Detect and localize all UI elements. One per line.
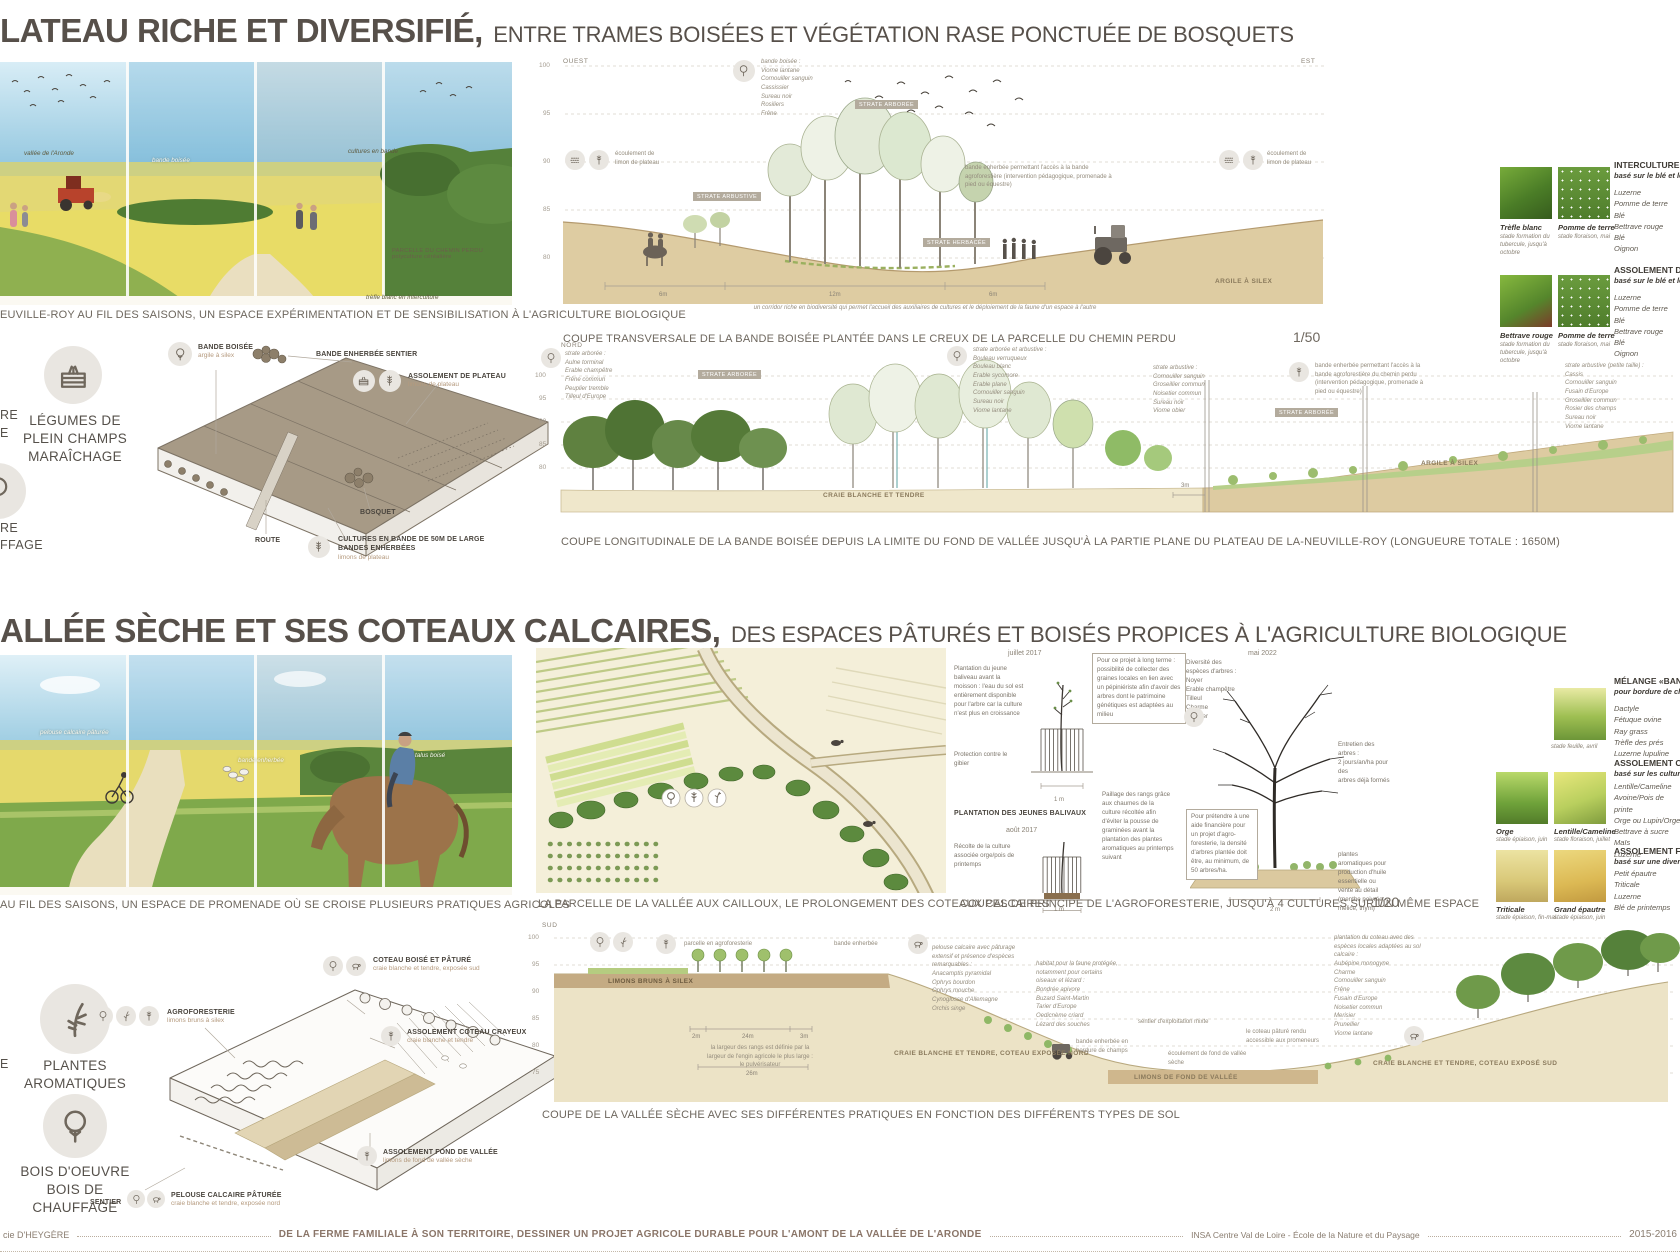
panorama-vallee: pelouse calcaire pâturée bande enherbée … [0, 655, 512, 895]
direction-east: EST [1301, 58, 1315, 65]
footer-project-title: DE LA FERME FAMILIALE À SON TERRITOIRE, … [279, 1229, 982, 1240]
soil-label-argile: ARGILE À SILEX [1215, 278, 1272, 285]
measure-26m: 26m [746, 1071, 758, 1077]
axis-tick: 100 [539, 62, 550, 69]
axo-label-bande-boisee: BANDE BOISÉEargile à silex [198, 343, 253, 361]
annotation-sentier: sentier d'exploitation mixte [1138, 1018, 1218, 1027]
photo-pomme-de-terre [1558, 275, 1610, 327]
axis-tick: 90 [543, 158, 550, 165]
measure-6m: 6m [989, 292, 997, 298]
annotation-parcelle-agroforesterie: parcelle en agroforesterie [684, 940, 774, 949]
coupe-transversale: OUEST EST 100 95 90 85 80 bande boisée :… [535, 52, 1345, 352]
tree-icon [590, 932, 610, 952]
annotation-parcelle-chemin-perdu: PARCELLE DU CHEMIN PERDU polyculture cér… [392, 248, 502, 260]
note-graines-locales: Pour ce projet à long terme : possibilit… [1092, 653, 1186, 724]
wheat-icon [589, 150, 609, 170]
section2-title-comma: , [712, 612, 721, 650]
wheat-icon [379, 370, 401, 392]
tag-strate-arboree: STRATE ARBORÉE [1275, 408, 1338, 417]
annotation-cultures-en-bande: cultures en bande [348, 148, 398, 155]
measure-3m: 3m [1181, 483, 1189, 489]
photo-stage: stade épiaison, juin [1554, 914, 1605, 922]
wheat-icon [656, 934, 676, 954]
annotation-trefle-blanc: trèfle blanc en interculture [366, 294, 438, 301]
photo-triticale [1496, 850, 1548, 902]
wheat-icon [381, 1026, 401, 1046]
note-aide-financiere: Pour prétendre à une aide financière pou… [1186, 809, 1258, 880]
panorama-plateau-illustration [0, 62, 512, 305]
axo-label-pelouse-calcaire: PELOUSE CALCAIRE PÂTURÉEcraie blanche et… [171, 1191, 282, 1209]
wheat-icon [139, 1006, 159, 1026]
section2-title: ALLÉE SÈCHE ET SES COTEAUX CALCAIRES [0, 612, 712, 650]
axonometric-vallee-block: AGROFORESTERIElimons bruns à silex COTEA… [85, 928, 590, 1223]
tree-icon [1184, 707, 1204, 727]
tree-icon [733, 60, 755, 82]
axis-tick: 80 [539, 464, 546, 471]
axo-label-coteau-boise: COTEAU BOISÉ ET PÂTURÉcraie blanche et t… [373, 956, 480, 974]
axis-tick: 75 [532, 1069, 539, 1076]
legend-cut-fragment: FFAGE [0, 538, 43, 552]
soil-limons-fond: LIMONS DE FOND DE VALLÉE [1134, 1074, 1238, 1081]
species-list-4: strate arbustive (petite taille) : Cassi… [1565, 362, 1645, 432]
coupes-agroforesterie-scale: 1/20 [1372, 894, 1399, 910]
sediment-icon [565, 150, 585, 170]
axis-tick: 85 [532, 1015, 539, 1022]
section1-title: LATEAU RICHE ET DIVERSIFIÉ [0, 12, 474, 50]
coupes-agroforesterie: juillet 2017 Plantation du jeune balivea… [952, 645, 1394, 917]
axis-tick: 90 [539, 418, 546, 425]
axonometric-plateau-block: BANDE BOISÉEargile à silex BANDE ENHERBÉ… [138, 328, 583, 573]
photo-stage: stade formation du tubercule, jusqu'à oc… [1500, 341, 1550, 365]
tag-strate-arboree: STRATE ARBORÉE [698, 370, 761, 379]
vegetable-crate-icon [44, 346, 102, 404]
photo-grand-epautre [1554, 850, 1606, 902]
tag-strate-arbustive: STRATE ARBUSTIVE [693, 192, 761, 201]
coupe-longitudinale-caption: COUPE LONGITUDINALE DE LA BANDE BOISÉE D… [561, 536, 1560, 548]
legend-assolement-head: ASSOLEMENT DE Pbasé sur le blé et les [1614, 265, 1680, 285]
note-corridor: un corridor riche en biodiversité qui pe… [715, 304, 1135, 313]
measure-12m: 12m [829, 292, 841, 298]
note-protection: Protection contre le gibier [954, 751, 1016, 769]
annotation-plantation-coteau: plantation du coteau avec des espèces lo… [1334, 934, 1430, 1038]
annotation-coteau-pature: le coteau pâturé rendu accessible aux pr… [1246, 1028, 1326, 1045]
legend-melange-head: MÉLANGE «BANDEpour bordure de cha [1614, 676, 1680, 696]
footer-dotted-leader [990, 1236, 1184, 1237]
aromatic-plant-icon [116, 1006, 136, 1026]
legend-assolement-coteau-head: ASSOLEMENT COTEbasé sur les cultures [1614, 758, 1680, 778]
date-mai-2022: mai 2022 [1248, 650, 1277, 657]
photo-name: Pomme de terre [1558, 331, 1615, 340]
soil-craie-nord: CRAIE BLANCHE ET TENDRE, COTEAU EXPOSÉE … [894, 1050, 1089, 1057]
measure-1m: 1 m [1054, 797, 1064, 803]
axo-label-cultures-en-bande: CULTURES EN BANDE DE 50M DE LARGE BANDES… [338, 535, 484, 563]
axo-label-bosquet: BOSQUET [360, 508, 396, 517]
annotation-bande-enherbee: bande enherbée [238, 757, 284, 764]
axo-label-assolement-fond: ASSOLEMENT FOND DE VALLÉElimons de fond … [383, 1148, 498, 1166]
photo-orge [1496, 772, 1548, 824]
axis-tick: 80 [532, 1042, 539, 1049]
legend-cut-fragment: RE [0, 521, 18, 535]
axo-label-bande-enherbee: BANDE ENHERBÉE SENTIER [316, 350, 417, 359]
footer-dotted-leader [1428, 1236, 1622, 1237]
photo-stage: stade épiaison, juin [1496, 836, 1547, 844]
axo-label-route: ROUTE [255, 536, 280, 545]
legend-cultures-plateau: INTERCULTUREbasé sur le blé et les Luzer… [1494, 145, 1680, 370]
wheat-icon [308, 536, 330, 558]
measure-3m: 3m [800, 1034, 808, 1040]
soil-limons-bruns: LIMONS BRUNS À SILEX [608, 978, 693, 985]
cow-icon [147, 1190, 165, 1208]
axis-tick: 95 [532, 961, 539, 968]
photo-lentille-cameline [1554, 772, 1606, 824]
panorama-vallee-caption: AU FIL DES SAISONS, UN ESPACE DE PROMENA… [0, 899, 570, 911]
annotation-vallee-aronde: vallée de l'Aronde [24, 150, 74, 157]
species-list-bande-boisee: bande boisée : Viorne lantane Cornouille… [761, 58, 831, 119]
axis-tick: 100 [535, 372, 546, 379]
tree-icon [323, 956, 343, 976]
annotation-bande-boisee: bande boisée [152, 157, 190, 164]
coupe-vallee-seche: SUD 100 95 90 85 80 75 parcelle en agrof… [528, 922, 1680, 1127]
date-aout-2017: août 2017 [1006, 827, 1037, 834]
wheat-icon [357, 1146, 377, 1166]
sketch-jeune-baliveau [1027, 671, 1097, 796]
coupe-vallee-seche-caption: COUPE DE LA VALLÉE SÈCHE AVEC SES DIFFÉR… [542, 1109, 1180, 1121]
photo-melange-bandes [1554, 688, 1606, 740]
annotation-habitat-faune: habitat pour la faune protégée, notammen… [1036, 960, 1120, 1030]
direction-south: SUD [542, 922, 558, 929]
axo-label-agroforesterie: AGROFORESTERIElimons bruns à silex [167, 1008, 235, 1026]
tree-icon [947, 346, 967, 366]
label-plantation-balivaux: PLANTATION DES JEUNES BALIVAUX [954, 809, 1086, 818]
photo-stage: stade floraison, juillet [1554, 836, 1610, 844]
coupe-transversale-illustration [535, 52, 1345, 312]
cut-circle-icon [0, 463, 26, 519]
annotation-ecoulement: écoulement de fond de vallée sèche [1168, 1050, 1252, 1067]
axo-label-assolement-plateau: ASSOLEMENT DE PLATEAUlimons de plateau [408, 372, 506, 390]
photo-name: Orge [1496, 827, 1514, 836]
axis-tick: 90 [532, 988, 539, 995]
panorama-plateau: vallée de l'Aronde bande boisée cultures… [0, 62, 512, 305]
note-plantation: Plantation du jeune baliveau avant la mo… [954, 665, 1024, 719]
legend-assolement-items: Luzerne Pomme de terre Blé Bettrave roug… [1614, 292, 1668, 360]
soil-label-argile: ARGILE À SILEX [1421, 460, 1478, 467]
note-ecoulement-left: écoulement de limon de plateau [615, 150, 675, 167]
photo-name: Triticale [1496, 905, 1525, 914]
note-entretien: Entretien des arbres : 2 jours/an/ha pou… [1338, 741, 1392, 786]
note-paillage: Paillage des rangs grâce aux chaumes de … [1102, 791, 1174, 863]
tag-strate-herbacee: STRATE HERBACÉE [923, 238, 990, 247]
legend-melange-items: Dactyle Fétuque ovine Ray grass Trèfle d… [1614, 703, 1669, 759]
axo-label-sentier: SENTIER [90, 1198, 121, 1207]
cow-icon [908, 934, 928, 954]
footer-dotted-leader [77, 1236, 271, 1237]
section1-title-row: LATEAU RICHE ET DIVERSIFIÉ , ENTRE TRAME… [0, 12, 1294, 50]
photo-bettrave-rouge [1500, 275, 1552, 327]
presentation-board: LATEAU RICHE ET DIVERSIFIÉ , ENTRE TRAME… [0, 0, 1680, 1260]
measure-2m: 2m [692, 1034, 700, 1040]
date-juillet-2017: juillet 2017 [1008, 650, 1041, 657]
photo-stage: stade floraison, mai [1558, 233, 1610, 241]
annotation-bande-enherbee: bande enherbée [834, 940, 904, 949]
wheat-icon [1289, 362, 1309, 382]
annotation-pelouse-calcaire: pelouse calcaire pâturée [40, 729, 109, 736]
photo-name: Pomme de terre [1558, 223, 1615, 232]
soil-label-craie: CRAIE BLANCHE ET TENDRE [823, 492, 925, 499]
tree-icon [127, 1190, 145, 1208]
section1-title-comma: , [474, 12, 483, 50]
plan-parcelle-illustration [536, 648, 946, 893]
note-bande-enherbee: bande enherbée permettant l'accès à la b… [1315, 362, 1425, 397]
panorama-vallee-illustration [0, 655, 512, 895]
section1-subtitle: ENTRE TRAMES BOISÉES ET VÉGÉTATION RASE … [493, 22, 1294, 48]
species-list-3: strate arbustive : Cornouiller sanguin G… [1153, 364, 1231, 416]
coupes-agroforesterie-caption: COUPES DE PRINCIPE DE L'AGROFORESTERIE, … [960, 898, 1479, 910]
axis-tick: 80 [543, 254, 550, 261]
vegetable-crate-icon [353, 370, 375, 392]
footer-year: 2015-2016 [1629, 1229, 1677, 1240]
species-list-1: strate arborée : Aulne torminal Erable c… [565, 350, 629, 402]
legend-legumes-label: LÉGUMES DE PLEIN CHAMPS MARAÎCHAGE [5, 412, 145, 467]
tree-icon [93, 1006, 113, 1026]
axis-tick: 85 [539, 441, 546, 448]
legend-interculture-items: Luzerne Pomme de terre Blé Bettrave roug… [1614, 187, 1668, 255]
wheat-icon [1243, 150, 1263, 170]
footer: cie D'HEYGÈRE DE LA FERME FAMILIALE À SO… [0, 1229, 1680, 1240]
legend-assolement-fond-items: Petit épautre Triticale Luzerne Blé de p… [1614, 868, 1670, 913]
photo-pomme-de-terre [1558, 167, 1610, 219]
photo-stage: stade épiaison, fin-mai [1496, 914, 1556, 922]
footer-author: cie D'HEYGÈRE [3, 1230, 69, 1240]
photo-name: Bettrave rouge [1500, 331, 1553, 340]
photo-trefle-blanc [1500, 167, 1552, 219]
tree-icon [168, 342, 192, 366]
photo-name: Trèfle blanc [1500, 223, 1542, 232]
note-largeur-rangs: la largeur des rangs est définie par la … [704, 1044, 816, 1070]
tag-strate-arboree: STRATE ARBORÉE [855, 100, 918, 109]
legend-cultures-vallee: MÉLANGE «BANDEpour bordure de cha Dactyl… [1494, 648, 1680, 933]
note-ecoulement-right: écoulement de limon de plateau [1267, 150, 1327, 167]
note-bande-enherbee: bande enherbée permettant l'accès à la b… [965, 164, 1115, 190]
coupe-longitudinale: NORD 100 95 90 85 80 strate arborée : Au… [533, 340, 1680, 552]
photo-stage: stade formation du tubercule, jusqu'à oc… [1500, 233, 1550, 257]
measure-24m: 24m [742, 1034, 754, 1040]
direction-north: NORD [561, 342, 583, 349]
legend-interculture-head: INTERCULTUREbasé sur le blé et les [1614, 160, 1680, 180]
tree-icon [541, 348, 561, 368]
species-list-2: strate arborée et arbustive : Bouleau ve… [973, 346, 1053, 416]
photo-stage: stade floraison, mai [1558, 341, 1610, 349]
annotation-pelouse-calcaire: pelouse calcaire avec pâturage extensif … [932, 944, 1020, 1014]
footer-school: INSA Centre Val de Loire - École de la N… [1191, 1230, 1420, 1240]
note-recolte: Récolte de la culture associée orge/pois… [954, 843, 1018, 870]
axis-tick: 85 [543, 206, 550, 213]
axis-tick: 95 [543, 110, 550, 117]
sediment-icon [1219, 150, 1239, 170]
footer-divider-line [0, 1251, 1680, 1252]
plan-parcelle: LA PARCELLE DE LA VALLÉE AUX CAILLOUX, L… [536, 648, 946, 910]
legend-assolement-fond-head: ASSOLEMENT FONbasé sur une diversit [1614, 846, 1680, 866]
photo-name: Lentille/Cameline [1554, 827, 1616, 836]
measure-6m: 6m [659, 292, 667, 298]
photo-stage: stade feuille, avril [1551, 743, 1597, 751]
axo-label-assolement-coteau: ASSOLEMENT COTEAU CRAYEUXcraie blanche e… [407, 1028, 526, 1046]
photo-name: Grand épautre [1554, 905, 1605, 914]
sheep-icon [346, 956, 366, 976]
direction-west: OUEST [563, 58, 588, 65]
axis-tick: 95 [539, 395, 546, 402]
aromatic-plant-icon [613, 932, 633, 952]
annotation-talus-boise: talus boisé [415, 752, 445, 759]
axis-tick: 100 [528, 934, 539, 941]
soil-craie-sud: CRAIE BLANCHE ET TENDRE, COTEAU EXPOSÉ S… [1373, 1060, 1557, 1067]
